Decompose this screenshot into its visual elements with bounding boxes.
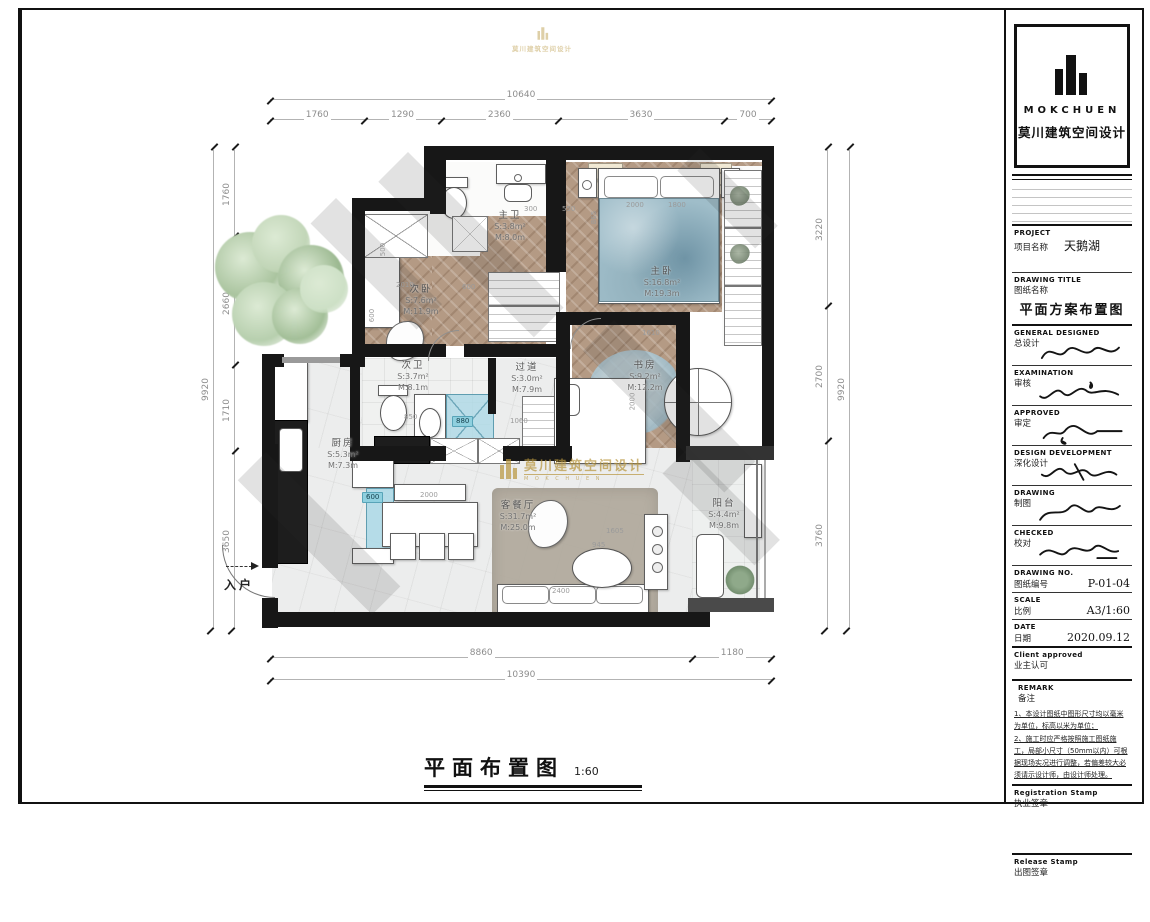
room-meters: M:25.0m [486, 523, 550, 533]
vanity-basin [419, 408, 441, 438]
sofa-cushion [596, 586, 643, 604]
inner-dimension: 600 [362, 492, 383, 503]
room-area: S:31.7m² [486, 512, 550, 522]
room-area: S:3.7m² [384, 372, 442, 382]
caption-underline [424, 785, 642, 788]
inner-dimension: 865 [591, 211, 598, 224]
dimension-value: 10640 [505, 91, 538, 100]
dining-chair [390, 533, 416, 560]
room-meters: M:8.0m [478, 233, 542, 243]
buildings-logo-icon [1051, 51, 1093, 99]
remark-note: 2、施工时应严格按照施工图纸施工，局部小尺寸（50mm以内）可根据现场实况进行调… [1014, 733, 1130, 782]
balcony-plant [724, 564, 756, 596]
field-general-designed: GENERAL DESIGNED 总设计 [1006, 326, 1138, 365]
wall-segment [464, 344, 570, 357]
caption-scale: 1:60 [574, 765, 599, 778]
dimension-segment: 1290 [364, 106, 440, 120]
dimension-segment: 700 [724, 106, 772, 120]
remark-section: REMARK 备注 [1006, 681, 1138, 706]
wall-segment [686, 446, 774, 460]
mokchuen-logo-icon [536, 26, 549, 41]
room-name: 主卧 [626, 266, 698, 278]
room-area: S:7.6m² [386, 296, 456, 306]
field-client-approved: Client approved 业主认可 [1006, 648, 1138, 679]
entrance-label: 入户 [224, 576, 254, 593]
dimension-value: 10390 [505, 671, 538, 680]
inner-dimension: 1605 [606, 528, 624, 535]
field-examination: EXAMINATION 审核 [1006, 366, 1138, 405]
wall-segment [352, 198, 365, 358]
room-meters: M:12.2m [616, 383, 674, 393]
toilet-bowl [380, 395, 407, 431]
room-name: 过道 [498, 362, 556, 374]
wall-segment [688, 598, 774, 612]
wall-segment [262, 612, 710, 627]
dimension-segment: 9920 [836, 150, 850, 628]
dimension-segment: 10640 [270, 86, 772, 100]
inner-dimension: 1060 [510, 418, 528, 425]
room-area: S:16.8m² [626, 278, 698, 288]
caption-title: 平面布置图 [424, 752, 564, 782]
round-table [664, 368, 732, 436]
field-approved: APPROVED 审定 [1006, 406, 1138, 445]
dining-chair [419, 533, 445, 560]
project-name: 天鹅湖 [1064, 237, 1100, 254]
inner-dimension: 850 [404, 414, 417, 421]
divider [1012, 174, 1132, 180]
room-meters: M:19.3m [626, 289, 698, 299]
dimension-value: 1760 [304, 111, 331, 120]
dimension-value: 3760 [816, 524, 825, 547]
note-lines [1012, 182, 1132, 222]
remark-note: 1、本设计图纸中图形尺寸均以毫米为单位，标高以米为单位； [1014, 708, 1130, 733]
dimension-segment: 9920 [200, 150, 214, 628]
inner-dimension: 1610 [642, 330, 660, 337]
registration-stamp-section: Registration Stamp 执业签章 [1006, 786, 1138, 853]
bedside-lamp [582, 180, 592, 190]
scale-value: A3/1:60 [1087, 604, 1130, 617]
dimension-segment: 8860 [270, 644, 692, 658]
dimension-segment: 1760 [270, 106, 364, 120]
dim-bottom-total: 10390 [270, 666, 772, 679]
dimension-value: 1760 [223, 183, 232, 206]
room-label: 过道S:3.0m²M:7.9m [498, 362, 556, 395]
inner-dimension: 2000 [629, 393, 636, 411]
closet-shelf [488, 272, 560, 306]
dimension-value: 1290 [389, 111, 416, 120]
room-name: 厨房 [314, 438, 372, 450]
inner-dimension: 2010 [396, 282, 414, 289]
dimension-segment: 1180 [692, 644, 772, 658]
room-name: 客餐厅 [486, 500, 550, 512]
drawing-sheet: { "title_block": { "brand": "MOKCHUEN", … [0, 0, 1150, 813]
dimension-segment: 3650 [221, 454, 235, 628]
wall-segment [546, 160, 566, 272]
dimension-segment: 2700 [814, 309, 828, 444]
field-scale: SCALE 比例 A3/1:60 [1006, 593, 1138, 619]
room-name: 书房 [616, 360, 674, 372]
brand-name: MOKCHUEN [1024, 105, 1121, 116]
room-meters: M:8.1m [384, 383, 442, 393]
dimension-value: 8860 [468, 649, 495, 658]
wash-basin [504, 184, 532, 202]
inner-dimension: 1800 [668, 202, 686, 209]
kitchen-sink [279, 428, 303, 472]
dimension-segment: 2360 [441, 106, 558, 120]
wall-segment [488, 358, 496, 414]
room-label: 主卧S:16.8m²M:19.3m [626, 266, 698, 299]
room-label: 厨房S:5.3m²M:7.3m [314, 438, 372, 471]
inner-dimension: 880 [452, 416, 473, 427]
room-area: S:4.4m² [696, 510, 752, 520]
inner-dimension: 600 [369, 309, 376, 322]
wall-segment [282, 357, 340, 363]
date-value: 2020.09.12 [1067, 631, 1130, 644]
inner-dimension: 945 [592, 542, 605, 549]
dimension-value: 1180 [719, 649, 746, 658]
drawing-number: P-01-04 [1088, 577, 1130, 590]
dimension-segment: 10390 [270, 666, 772, 680]
dimension-segment: 3630 [558, 106, 724, 120]
tv-knob [652, 562, 663, 573]
room-label: 阳台S:4.4m²M:9.8m [696, 498, 752, 531]
sofa-cushion [502, 586, 549, 604]
bedroom2-wardrobe [364, 214, 428, 258]
dimension-segment: 3220 [814, 150, 828, 309]
signature [1014, 539, 1130, 563]
company-logo-box: MOKCHUEN 莫川建筑空间设计 [1014, 24, 1130, 168]
title-block: MOKCHUEN 莫川建筑空间设计 PROJECT 项目名称 天鹅湖 DRAWI… [1006, 10, 1138, 798]
inner-dimension: 550 [562, 206, 575, 213]
room-meters: M:7.9m [498, 385, 556, 395]
company-name: 莫川建筑空间设计 [1018, 122, 1126, 141]
wall-segment [676, 325, 690, 462]
dimension-value: 9920 [838, 378, 847, 401]
field-project: PROJECT 项目名称 天鹅湖 [1006, 226, 1138, 272]
room-name: 次卫 [384, 360, 442, 372]
dim-top-segments: 1760129023603630700 [270, 106, 772, 119]
dim-left-total: 9920 [200, 150, 213, 628]
signature [1014, 459, 1130, 483]
dimension-value: 3220 [816, 218, 825, 241]
drawing-title: 平面方案布置图 [1014, 296, 1130, 322]
room-meters: M:7.3m [314, 461, 372, 471]
pillow [660, 176, 714, 198]
basin-counter [496, 164, 546, 184]
dim-right-total: 9920 [836, 150, 849, 628]
field-design-development: DESIGN DEVELOPMENT 深化设计 [1006, 446, 1138, 485]
window-line [764, 458, 766, 600]
wall-segment [350, 358, 360, 448]
room-meters: M:9.8m [696, 521, 752, 531]
room-area: S:3.0m² [498, 374, 556, 384]
inner-dimension: 300 [524, 206, 537, 213]
dimension-segment: 3760 [814, 444, 828, 628]
center-watermark: 莫川建筑空间设计 M O K C H U E N [498, 455, 644, 482]
dim-top-total: 10640 [270, 86, 772, 99]
dimension-segment: 1710 [221, 368, 235, 454]
field-drawing-no: DRAWING NO. 图纸编号 P-01-04 [1006, 566, 1138, 592]
plant-icon [730, 244, 750, 264]
watermark-text: 莫川建筑空间设计 [524, 455, 644, 474]
island-cabinet [352, 548, 394, 564]
wall-segment [424, 146, 774, 160]
dimension-value: 9920 [202, 378, 211, 401]
dimension-value: 2360 [486, 111, 513, 120]
room-area: S:9.2m² [616, 372, 674, 382]
signature [1014, 379, 1130, 403]
tv-knob [652, 526, 663, 537]
signature [1014, 339, 1130, 363]
wall-segment [262, 366, 275, 448]
entrance-arrow-icon [226, 566, 252, 567]
dim-right-segments: 322027003760 [814, 150, 827, 628]
field-drawing-title: DRAWING TITLE 图纸名称 平面方案布置图 [1006, 273, 1138, 324]
mokchuen-logo-icon [498, 457, 518, 481]
release-stamp-section: Release Stamp 出图签章 [1006, 855, 1138, 922]
balcony-bench [696, 534, 724, 598]
inner-dimension: 2400 [552, 588, 570, 595]
signature [1014, 419, 1130, 443]
room-label: 次卫S:3.7m²M:8.1m [384, 360, 442, 393]
room-meters: M:11.9m [386, 307, 456, 317]
room-area: S:3.8m² [478, 222, 542, 232]
plant-icon [730, 186, 750, 206]
kitchen-counter [274, 362, 308, 422]
pillow [604, 176, 658, 198]
dining-chair [448, 533, 474, 560]
room-label: 书房S:9.2m²M:12.2m [616, 360, 674, 393]
top-watermark: 莫川建筑空间设计 [512, 26, 572, 53]
dimension-value: 1710 [223, 399, 232, 422]
wall-segment [430, 160, 446, 214]
dim-bottom-segments: 88601180 [270, 644, 772, 657]
dimension-segment: 1760 [221, 150, 235, 239]
dimension-value: 3630 [628, 111, 655, 120]
inner-dimension: 2000 [626, 202, 644, 209]
watermark-text: 莫川建筑空间设计 [512, 43, 572, 53]
closet-shelf [488, 306, 560, 342]
room-label: 主卫S:3.8m²M:8.0m [478, 210, 542, 243]
wardrobe [724, 286, 762, 346]
field-checked: CHECKED 校对 [1006, 526, 1138, 565]
inner-dimension: 2000 [420, 492, 438, 499]
wall-segment [556, 312, 570, 462]
faucet-dot [514, 174, 522, 182]
caption-underline-2 [424, 790, 642, 791]
room-name: 阳台 [696, 498, 752, 510]
wall-segment [556, 312, 690, 325]
drawing-caption: 平面布置图 1:60 [424, 752, 642, 791]
dimension-value: 2700 [816, 365, 825, 388]
window-line [756, 458, 758, 600]
watermark-subtext: M O K C H U E N [524, 474, 644, 482]
tv-knob [652, 544, 663, 555]
field-date: DATE 日期 2020.09.12 [1006, 620, 1138, 646]
field-drawing-by: DRAWING 制图 [1006, 486, 1138, 525]
dimension-value: 700 [737, 111, 758, 120]
room-label: 客餐厅S:31.7m²M:25.0m [486, 500, 550, 533]
signature [1014, 499, 1130, 523]
inner-dimension: 500 [380, 243, 387, 256]
coffee-table [572, 548, 632, 588]
wall-segment [762, 146, 774, 460]
inner-dimension: 600 [462, 284, 475, 291]
room-area: S:5.3m² [314, 450, 372, 460]
remark-notes: 1、本设计图纸中图形尺寸均以毫米为单位，标高以米为单位； 2、施工时应严格按照施… [1014, 708, 1130, 782]
tree-canopy [300, 265, 348, 313]
